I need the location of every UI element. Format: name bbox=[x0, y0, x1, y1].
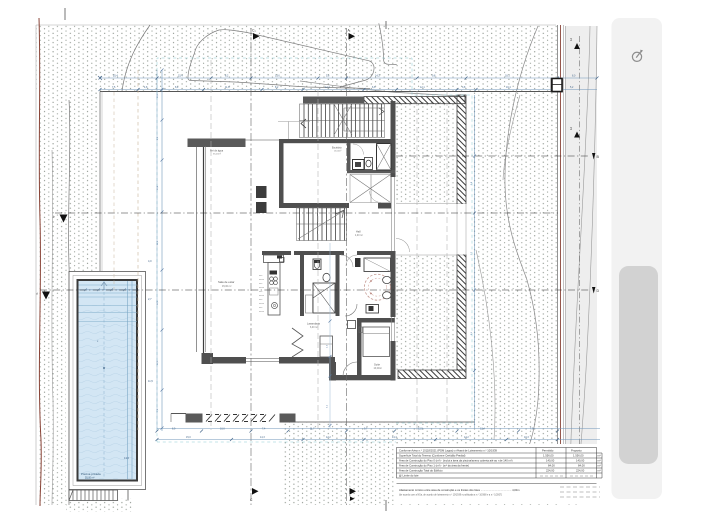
svg-text:@ Limite do lote: @ Limite do lote bbox=[399, 474, 419, 478]
svg-text:224,00: 224,00 bbox=[546, 469, 555, 473]
svg-text:Lavandaria: Lavandaria bbox=[307, 322, 320, 326]
svg-text:mm: mm bbox=[259, 283, 263, 285]
svg-text:m²: m² bbox=[598, 460, 601, 463]
svg-text:11,7: 11,7 bbox=[310, 428, 315, 431]
svg-text:mm: mm bbox=[259, 291, 263, 293]
svg-text:mmm: mmm bbox=[259, 287, 264, 289]
svg-text:14,2: 14,2 bbox=[464, 436, 469, 439]
svg-text:11,8: 11,8 bbox=[225, 86, 230, 89]
svg-text:12,1: 12,1 bbox=[420, 86, 425, 89]
svg-text:140,00: 140,00 bbox=[546, 459, 555, 463]
svg-text:12,3: 12,3 bbox=[325, 86, 330, 89]
svg-text:Área de Construção do Piso 0 (: Área de Construção do Piso 0 (m²) - (inc… bbox=[399, 459, 513, 463]
svg-text:16,00m²: 16,00m² bbox=[374, 367, 383, 370]
svg-text:1.556,00: 1.556,00 bbox=[543, 454, 554, 458]
svg-text:D: D bbox=[597, 289, 600, 293]
svg-text:Afastamento mínimo entre área: Afastamento mínimo entre área de constru… bbox=[399, 488, 520, 492]
svg-text:84,00: 84,00 bbox=[578, 464, 585, 468]
svg-text:12,4: 12,4 bbox=[480, 428, 485, 431]
svg-text:Hall: Hall bbox=[356, 230, 361, 234]
svg-text:m²: m² bbox=[598, 455, 601, 458]
svg-text:13,6: 13,6 bbox=[275, 75, 280, 78]
svg-text:mmm: mmm bbox=[259, 279, 264, 281]
svg-text:14,4: 14,4 bbox=[392, 436, 397, 439]
svg-text:Área de Construção do Piso 1 (: Área de Construção do Piso 1 (m²) - (m² … bbox=[399, 464, 469, 468]
svg-text:15,0: 15,0 bbox=[186, 436, 191, 439]
svg-text:mm: mm bbox=[259, 275, 263, 277]
svg-text:Superfície Total do Terreno (C: Superfície Total do Terreno (Conforme Ce… bbox=[399, 454, 465, 458]
svg-text:14,3: 14,3 bbox=[260, 436, 265, 439]
svg-text:mm: mm bbox=[259, 299, 263, 301]
svg-text:15,4: 15,4 bbox=[178, 75, 183, 78]
svg-text:Suite: Suite bbox=[374, 363, 380, 367]
svg-text:13,0: 13,0 bbox=[124, 456, 130, 460]
svg-text:4,0: 4,0 bbox=[148, 259, 152, 263]
svg-text:m²: m² bbox=[598, 470, 601, 473]
svg-text:12,2: 12,2 bbox=[326, 436, 331, 439]
svg-text:mmm: mmm bbox=[259, 311, 264, 313]
svg-text:10,3: 10,3 bbox=[524, 436, 529, 439]
svg-text:12,5: 12,5 bbox=[418, 428, 423, 431]
svg-text:Conforme Aviso n.º 10118/2021: Conforme Aviso n.º 10118/2021 (PDM Lagoa… bbox=[399, 449, 497, 453]
svg-text:84,00: 84,00 bbox=[548, 464, 555, 468]
svg-text:16,00m²: 16,00m² bbox=[334, 150, 342, 153]
svg-text:55,00 m²: 55,00 m² bbox=[85, 477, 95, 480]
svg-text:mm: mm bbox=[259, 307, 263, 309]
svg-text:Proposto: Proposto bbox=[571, 449, 582, 453]
svg-text:Área de Construção Total do Ed: Área de Construção Total do Edifício bbox=[399, 469, 443, 473]
svg-text:45,00 m²: 45,00 m² bbox=[222, 285, 232, 288]
svg-text:mmm: mmm bbox=[259, 295, 264, 297]
svg-text:25,4: 25,4 bbox=[113, 75, 118, 78]
svg-text:16,4: 16,4 bbox=[506, 86, 511, 89]
svg-text:14,2: 14,2 bbox=[375, 75, 380, 78]
svg-text:18,1: 18,1 bbox=[505, 75, 510, 78]
svg-text:140,00: 140,00 bbox=[576, 459, 585, 463]
svg-text:Pré de água: Pré de água bbox=[210, 150, 224, 153]
svg-text:11,5: 11,5 bbox=[148, 379, 153, 383]
svg-text:4,00 m²: 4,00 m² bbox=[355, 234, 363, 237]
svg-text:224,00: 224,00 bbox=[576, 469, 585, 473]
svg-text:Escritório: Escritório bbox=[332, 147, 342, 150]
svg-text:Sala de estar: Sala de estar bbox=[218, 280, 235, 284]
svg-text:6,00 m²: 6,00 m² bbox=[310, 326, 318, 329]
svg-text:m²: m² bbox=[598, 465, 601, 468]
svg-text:Piscina privada: Piscina privada bbox=[81, 472, 101, 476]
svg-text:2,7: 2,7 bbox=[148, 297, 152, 301]
svg-text:35,00m²: 35,00m² bbox=[213, 153, 221, 156]
svg-text:1.556,00: 1.556,00 bbox=[573, 454, 584, 458]
svg-text:mmm: mmm bbox=[259, 303, 264, 305]
svg-text:Permitido: Permitido bbox=[542, 449, 554, 453]
svg-text:10,0: 10,0 bbox=[220, 428, 225, 431]
